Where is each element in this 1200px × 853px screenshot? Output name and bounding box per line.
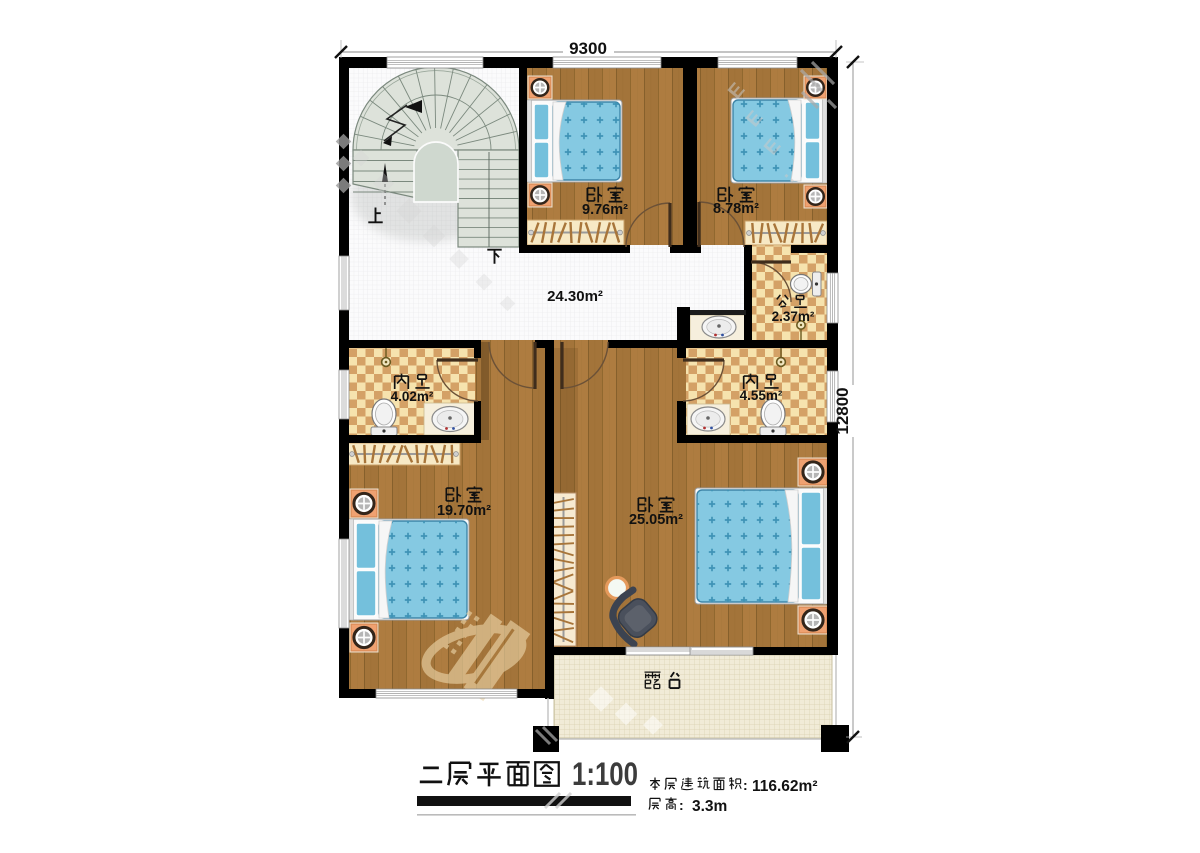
svg-text:3.3m: 3.3m bbox=[692, 798, 727, 815]
svg-text:4.02m²: 4.02m² bbox=[391, 389, 434, 404]
svg-text:12800: 12800 bbox=[833, 387, 852, 434]
svg-text:1:100: 1:100 bbox=[572, 756, 638, 792]
svg-text:25.05m²: 25.05m² bbox=[629, 512, 683, 528]
svg-text::: : bbox=[743, 777, 748, 793]
svg-text:9.76m²: 9.76m² bbox=[582, 202, 628, 218]
svg-text:9300: 9300 bbox=[569, 39, 607, 58]
svg-text:24.30m²: 24.30m² bbox=[547, 288, 603, 305]
svg-text::: : bbox=[679, 797, 684, 813]
svg-text:8.78m²: 8.78m² bbox=[713, 201, 759, 217]
svg-text:2.37m²: 2.37m² bbox=[772, 309, 815, 324]
svg-text:116.62m²: 116.62m² bbox=[752, 778, 818, 795]
svg-text:19.70m²: 19.70m² bbox=[437, 503, 491, 519]
svg-text:4.55m²: 4.55m² bbox=[740, 388, 783, 403]
